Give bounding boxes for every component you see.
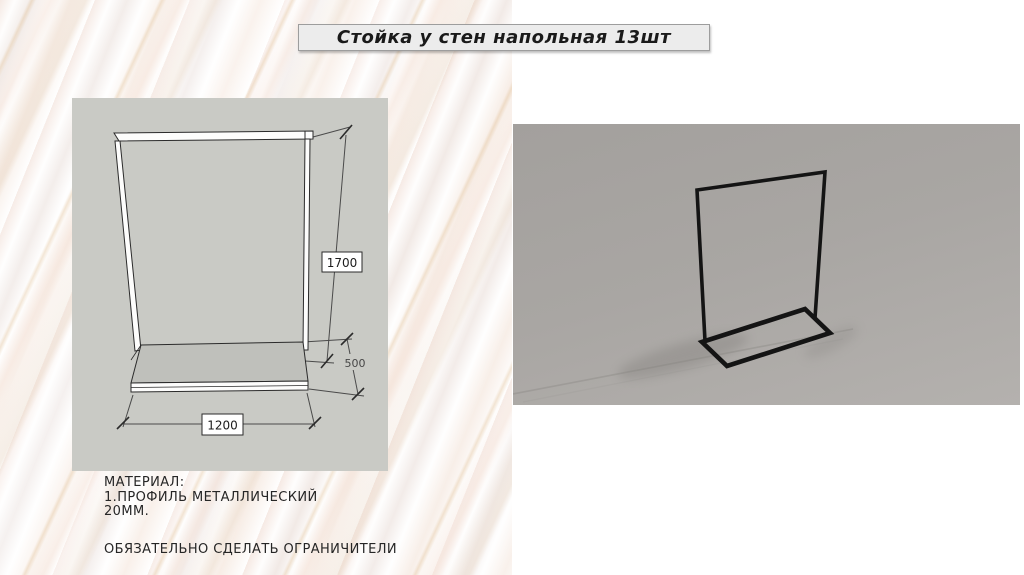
technical-drawing-panel: 1700 500 1200	[72, 98, 388, 471]
render-3d-svg	[513, 124, 1020, 405]
frame-left-post	[115, 141, 141, 351]
material-heading: МАТЕРИАЛ:	[104, 476, 318, 491]
material-notes: МАТЕРИАЛ: 1.ПРОФИЛЬ МЕТАЛЛИЧЕСКИЙ 20ММ.	[104, 476, 318, 520]
frame-top-bar	[114, 131, 313, 141]
technical-drawing-svg: 1700 500 1200	[72, 98, 388, 471]
page-title: Стойка у стен напольная 13шт	[337, 27, 671, 48]
material-size: 20ММ.	[104, 505, 318, 520]
dim-height-line	[327, 135, 346, 361]
dim-depth-ext-bottom	[309, 389, 364, 396]
frame-outline	[114, 131, 313, 392]
render-panel	[513, 124, 1020, 405]
dim-depth-label: 500	[345, 357, 366, 370]
dim-width-ext-right	[307, 393, 315, 427]
dim-height-ext-top	[313, 127, 350, 137]
tick	[309, 417, 321, 429]
dim-height-label: 1700	[327, 256, 358, 270]
render-frame-hoop	[697, 172, 825, 341]
dim-height-ext-bottom	[305, 361, 334, 363]
frame-right-post	[303, 139, 310, 350]
tick	[117, 417, 129, 429]
material-item: 1.ПРОФИЛЬ МЕТАЛЛИЧЕСКИЙ	[104, 491, 318, 506]
tick	[352, 388, 364, 400]
base-platform-top	[131, 342, 308, 383]
slide: Стойка у стен напольная 13шт	[0, 0, 1024, 575]
title-box: Стойка у стен напольная 13шт	[298, 24, 710, 51]
base-shadow-right	[800, 320, 861, 364]
requirement-text: ОБЯЗАТЕЛЬНО СДЕЛАТЬ ОГРАНИЧИТЕЛИ	[104, 543, 397, 558]
dim-width-label: 1200	[207, 419, 238, 433]
requirement-note: ОБЯЗАТЕЛЬНО СДЕЛАТЬ ОГРАНИЧИТЕЛИ	[104, 543, 397, 558]
